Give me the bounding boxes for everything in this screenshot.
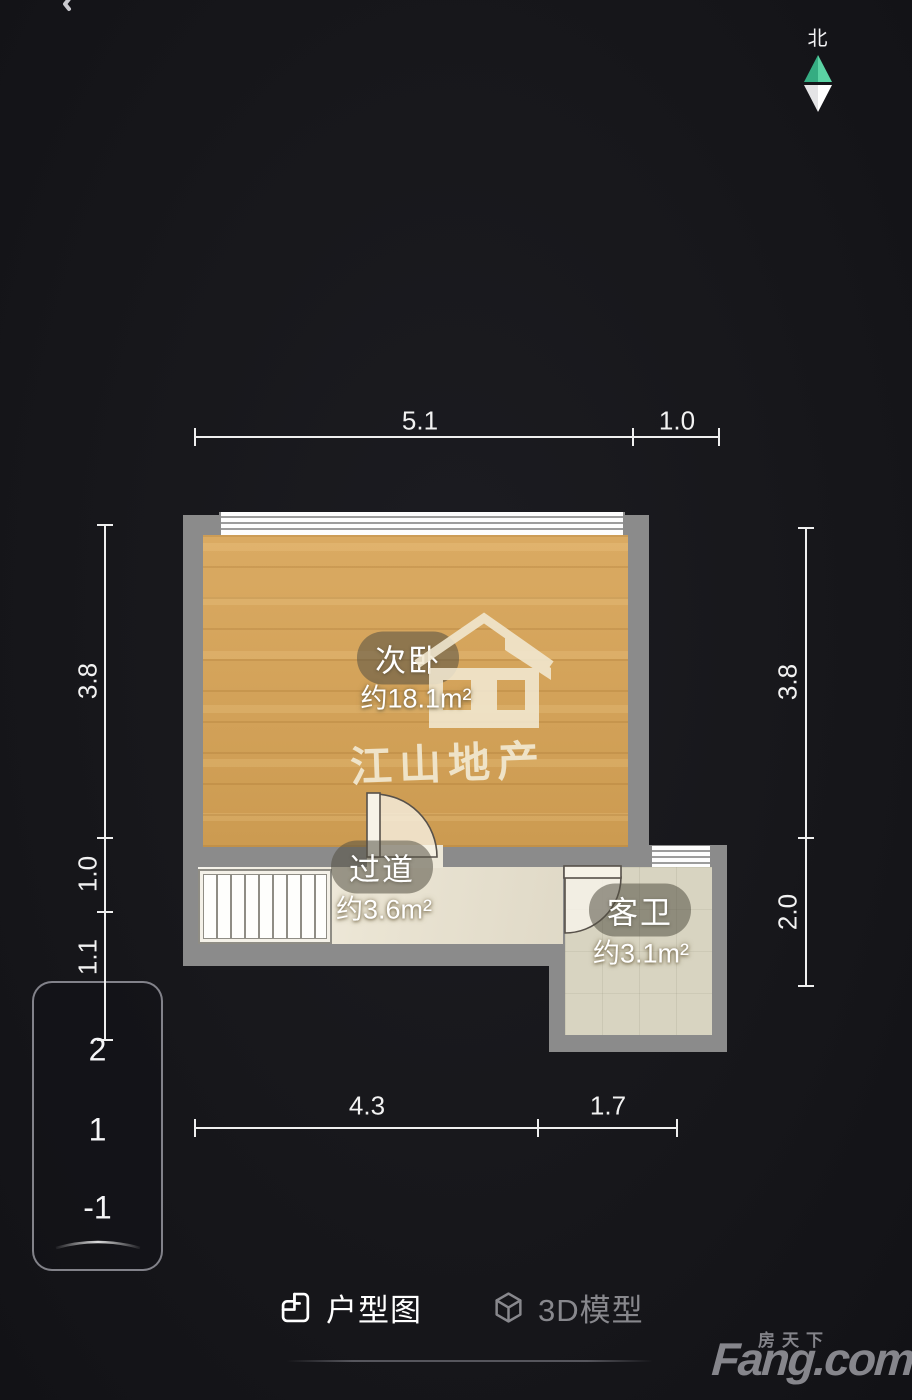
floorplan-viewer-screen: 北 xyxy=(0,0,912,1400)
dim-tick xyxy=(97,524,113,526)
dim-tick xyxy=(97,837,113,839)
room-area-bathroom: 约3.1m² xyxy=(593,932,689,971)
dim-label-right-1: 3.8 xyxy=(773,664,804,700)
room-area-hallway: 约3.6m² xyxy=(336,888,432,927)
dim-tick xyxy=(798,985,814,987)
tab-floorplan-label: 户型图 xyxy=(326,1285,422,1330)
floorplan-icon xyxy=(280,1291,313,1324)
compass-needle-icon xyxy=(803,55,833,113)
bedroom-window xyxy=(219,512,625,535)
dim-label-left-3: 1.1 xyxy=(73,939,104,975)
dim-label-top-1: 5.1 xyxy=(402,406,438,437)
stair-treads xyxy=(203,874,327,939)
dim-label-bottom-2: 1.7 xyxy=(590,1091,626,1122)
dim-tick xyxy=(537,1119,539,1137)
dim-tick xyxy=(97,911,113,913)
swipe-hint-icon xyxy=(52,1235,144,1251)
3d-cube-icon xyxy=(492,1291,525,1324)
floor-selector[interactable]: 2 1 -1 xyxy=(32,981,163,1271)
chevron-left-icon xyxy=(48,0,88,22)
dim-line-top xyxy=(195,436,720,438)
dim-line-left xyxy=(104,525,106,1041)
dim-tick xyxy=(676,1119,678,1137)
dim-tick xyxy=(718,428,720,446)
compass-north-label: 北 xyxy=(796,22,840,51)
dim-tick xyxy=(798,527,814,529)
stairs xyxy=(198,869,332,944)
dim-label-left-1: 3.8 xyxy=(73,663,104,699)
floor-selector-item-1[interactable]: 1 xyxy=(34,1112,161,1149)
dim-tick xyxy=(194,1119,196,1137)
dim-label-top-2: 1.0 xyxy=(659,406,695,437)
tab-3d-model[interactable]: 3D模型 xyxy=(492,1284,644,1330)
dim-tick xyxy=(97,1039,113,1041)
back-button[interactable] xyxy=(48,0,88,22)
floor-selector-item-2[interactable]: 2 xyxy=(34,1032,161,1069)
dim-line-bottom xyxy=(195,1127,678,1129)
dim-line-right xyxy=(805,528,807,987)
floor-selector-item-minus1[interactable]: -1 xyxy=(34,1190,161,1227)
tab-3d-label: 3D模型 xyxy=(538,1285,644,1330)
watermark-brand-text: 江山地产 xyxy=(349,726,561,794)
bathroom-window xyxy=(650,846,712,867)
room-label-bathroom: 客卫 xyxy=(589,884,691,937)
tab-floorplan[interactable]: 户型图 xyxy=(280,1284,422,1330)
dim-tick xyxy=(798,837,814,839)
room-area-bedroom: 约18.1m² xyxy=(360,677,471,716)
compass: 北 xyxy=(796,22,840,114)
dim-label-left-2: 1.0 xyxy=(73,856,104,892)
tab-bar-divider xyxy=(287,1360,653,1362)
room-label-hallway: 过道 xyxy=(331,841,433,894)
dim-tick xyxy=(194,428,196,446)
fang-logo: 房天下 Fang.com xyxy=(710,1324,910,1394)
dim-label-right-2: 2.0 xyxy=(773,894,804,930)
fang-logo-en: Fang.com xyxy=(710,1332,912,1386)
dim-tick xyxy=(632,428,634,446)
dim-label-bottom-1: 4.3 xyxy=(349,1091,385,1122)
